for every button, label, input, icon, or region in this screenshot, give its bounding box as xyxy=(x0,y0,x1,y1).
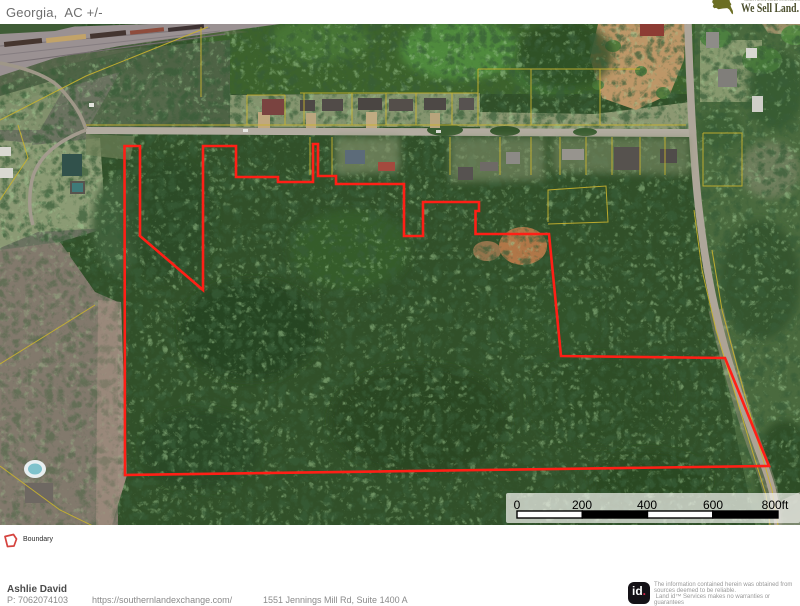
svg-text:800ft: 800ft xyxy=(762,498,789,512)
svg-text:0: 0 xyxy=(514,498,521,512)
svg-text:We Sell Land.: We Sell Land. xyxy=(741,1,799,15)
svg-text:400: 400 xyxy=(637,498,657,512)
svg-text:600: 600 xyxy=(703,498,723,512)
svg-text:200: 200 xyxy=(572,498,592,512)
